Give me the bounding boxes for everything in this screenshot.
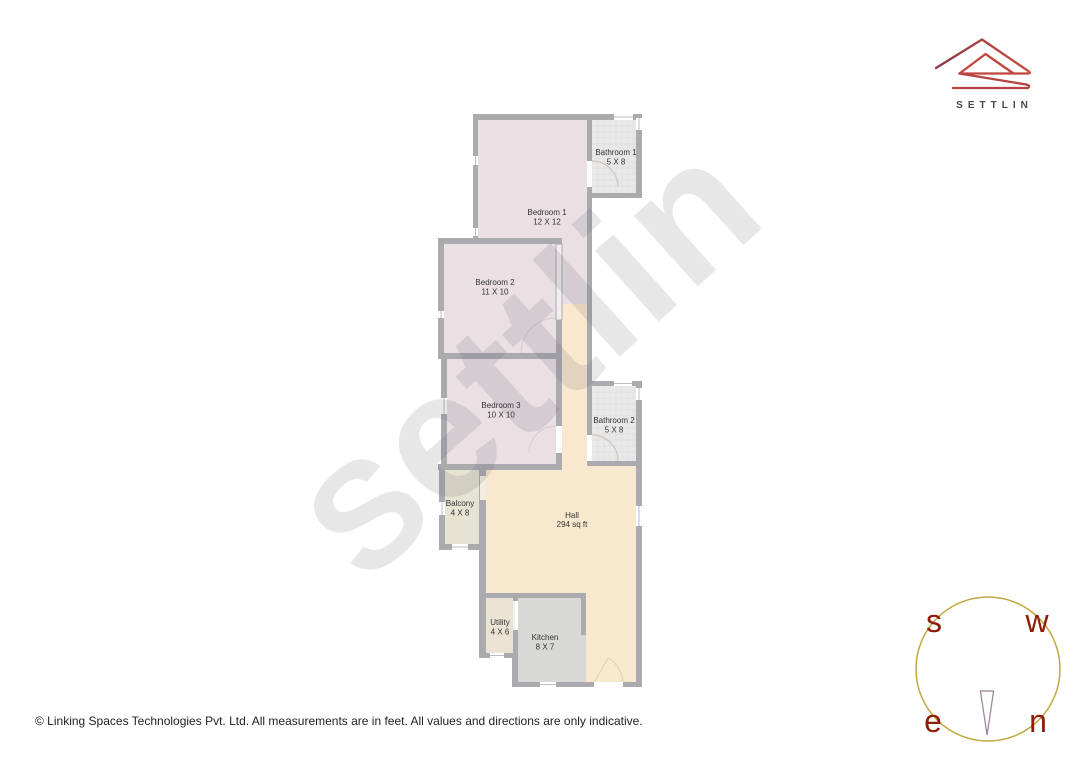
svg-text:Bathroom 2: Bathroom 2 <box>593 416 635 425</box>
svg-text:Bedroom 2: Bedroom 2 <box>475 278 515 287</box>
svg-text:4 X 8: 4 X 8 <box>451 509 470 518</box>
svg-text:Bedroom 3: Bedroom 3 <box>481 401 521 410</box>
svg-text:Kitchen: Kitchen <box>532 633 559 642</box>
svg-text:e: e <box>924 703 942 739</box>
svg-text:4 X 6: 4 X 6 <box>491 628 510 637</box>
svg-text:8 X 7: 8 X 7 <box>536 643 555 652</box>
svg-text:294 sq ft: 294 sq ft <box>557 520 588 529</box>
svg-text:5 X 8: 5 X 8 <box>605 426 624 435</box>
svg-text:Bedroom 1: Bedroom 1 <box>527 208 567 217</box>
svg-text:· ·: · · <box>988 755 994 761</box>
svg-text:10 X 10: 10 X 10 <box>487 411 515 420</box>
svg-text:s: s <box>926 603 942 639</box>
svg-text:Balcony: Balcony <box>446 499 474 508</box>
svg-text:Hall: Hall <box>565 511 579 520</box>
svg-text:© Linking Spaces Technologies: © Linking Spaces Technologies Pvt. Ltd. … <box>35 714 643 728</box>
svg-text:w: w <box>1024 603 1049 639</box>
svg-text:12 X 12: 12 X 12 <box>533 218 561 227</box>
svg-text:n: n <box>1029 703 1047 739</box>
svg-text:11 X 10: 11 X 10 <box>482 288 510 297</box>
svg-text:5 X 8: 5 X 8 <box>607 158 626 167</box>
svg-text:Utility: Utility <box>490 618 510 627</box>
svg-text:SETTLIN: SETTLIN <box>956 100 1033 111</box>
svg-text:Bathroom 1: Bathroom 1 <box>595 148 637 157</box>
